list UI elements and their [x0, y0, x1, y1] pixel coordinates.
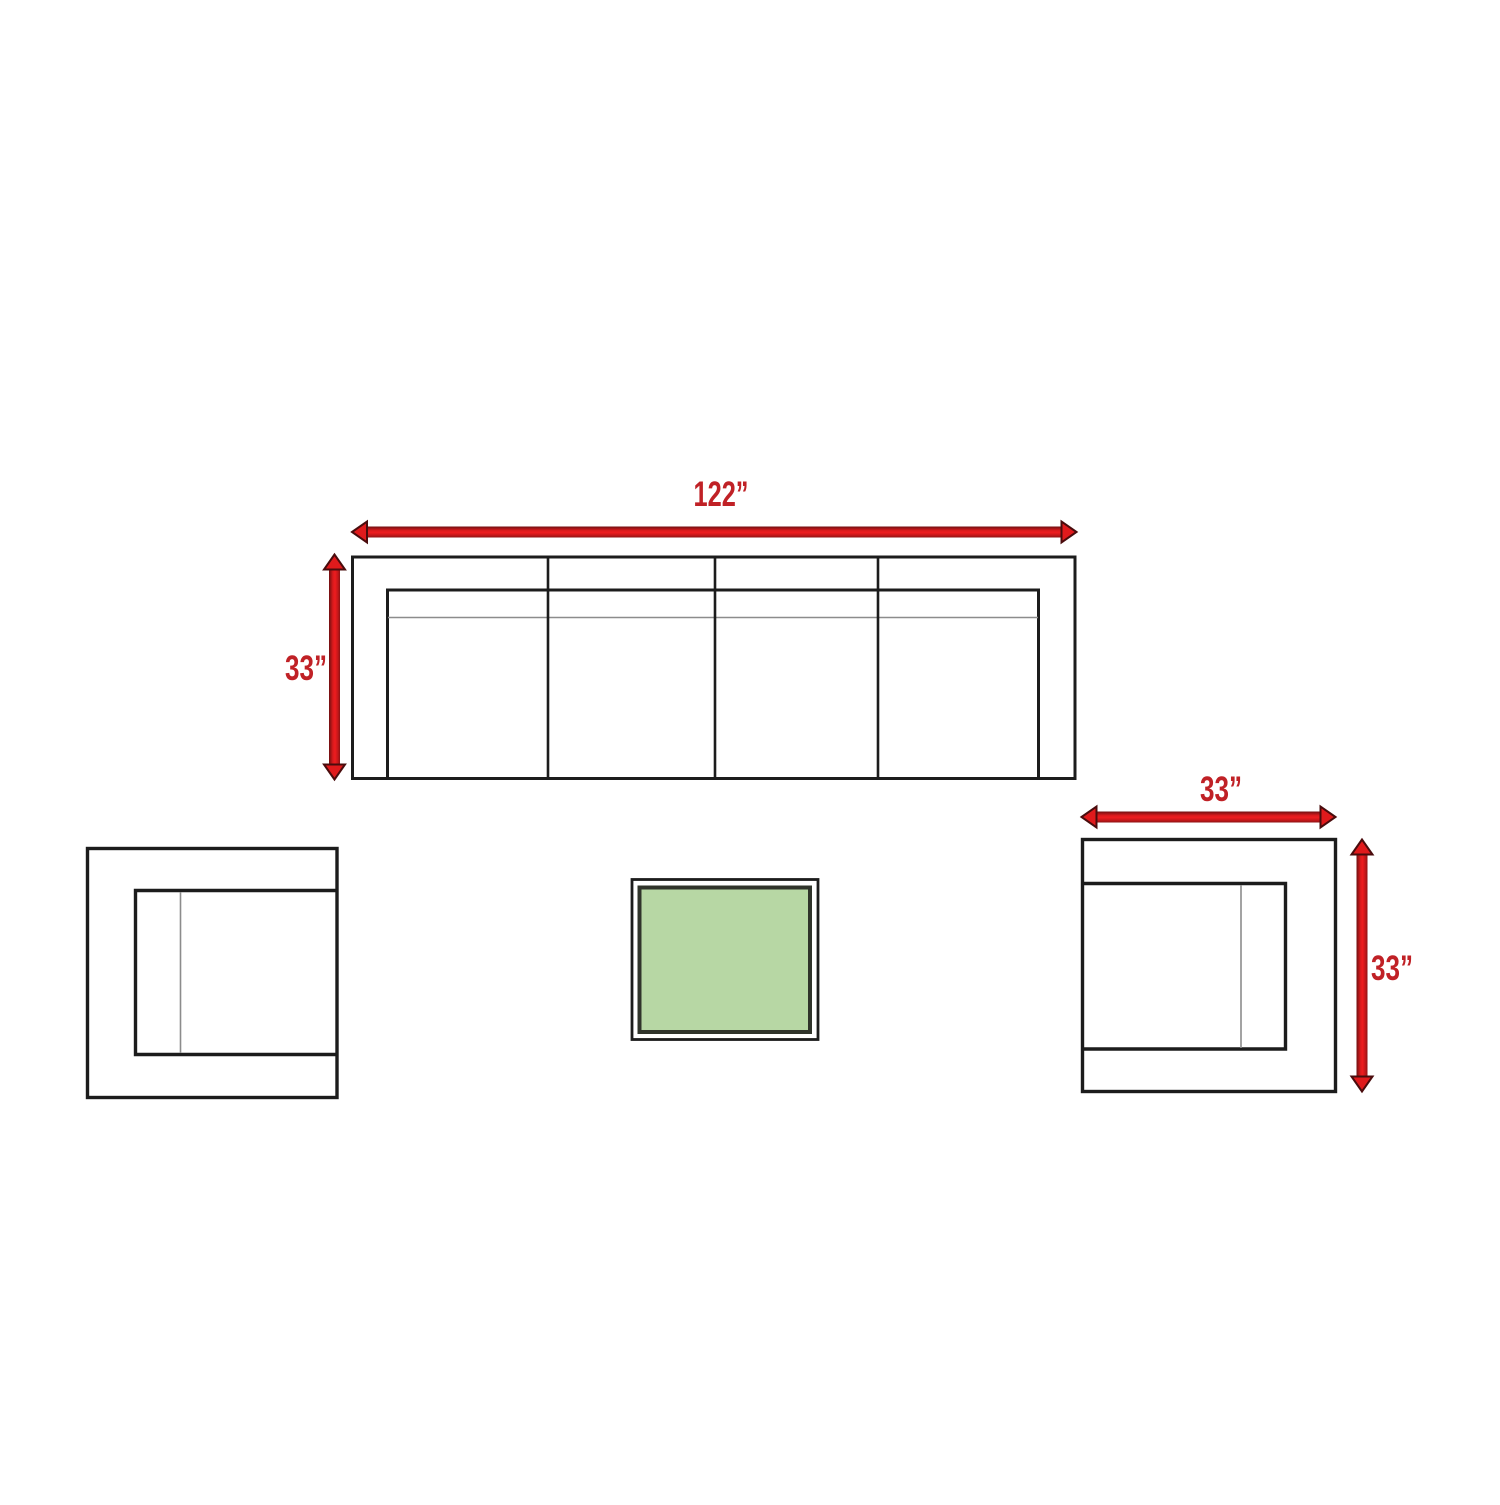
svg-text:122”: 122” [694, 475, 749, 514]
svg-text:33”: 33” [1200, 770, 1242, 809]
svg-text:33”: 33” [1371, 949, 1413, 988]
svg-text:33”: 33” [285, 649, 327, 688]
